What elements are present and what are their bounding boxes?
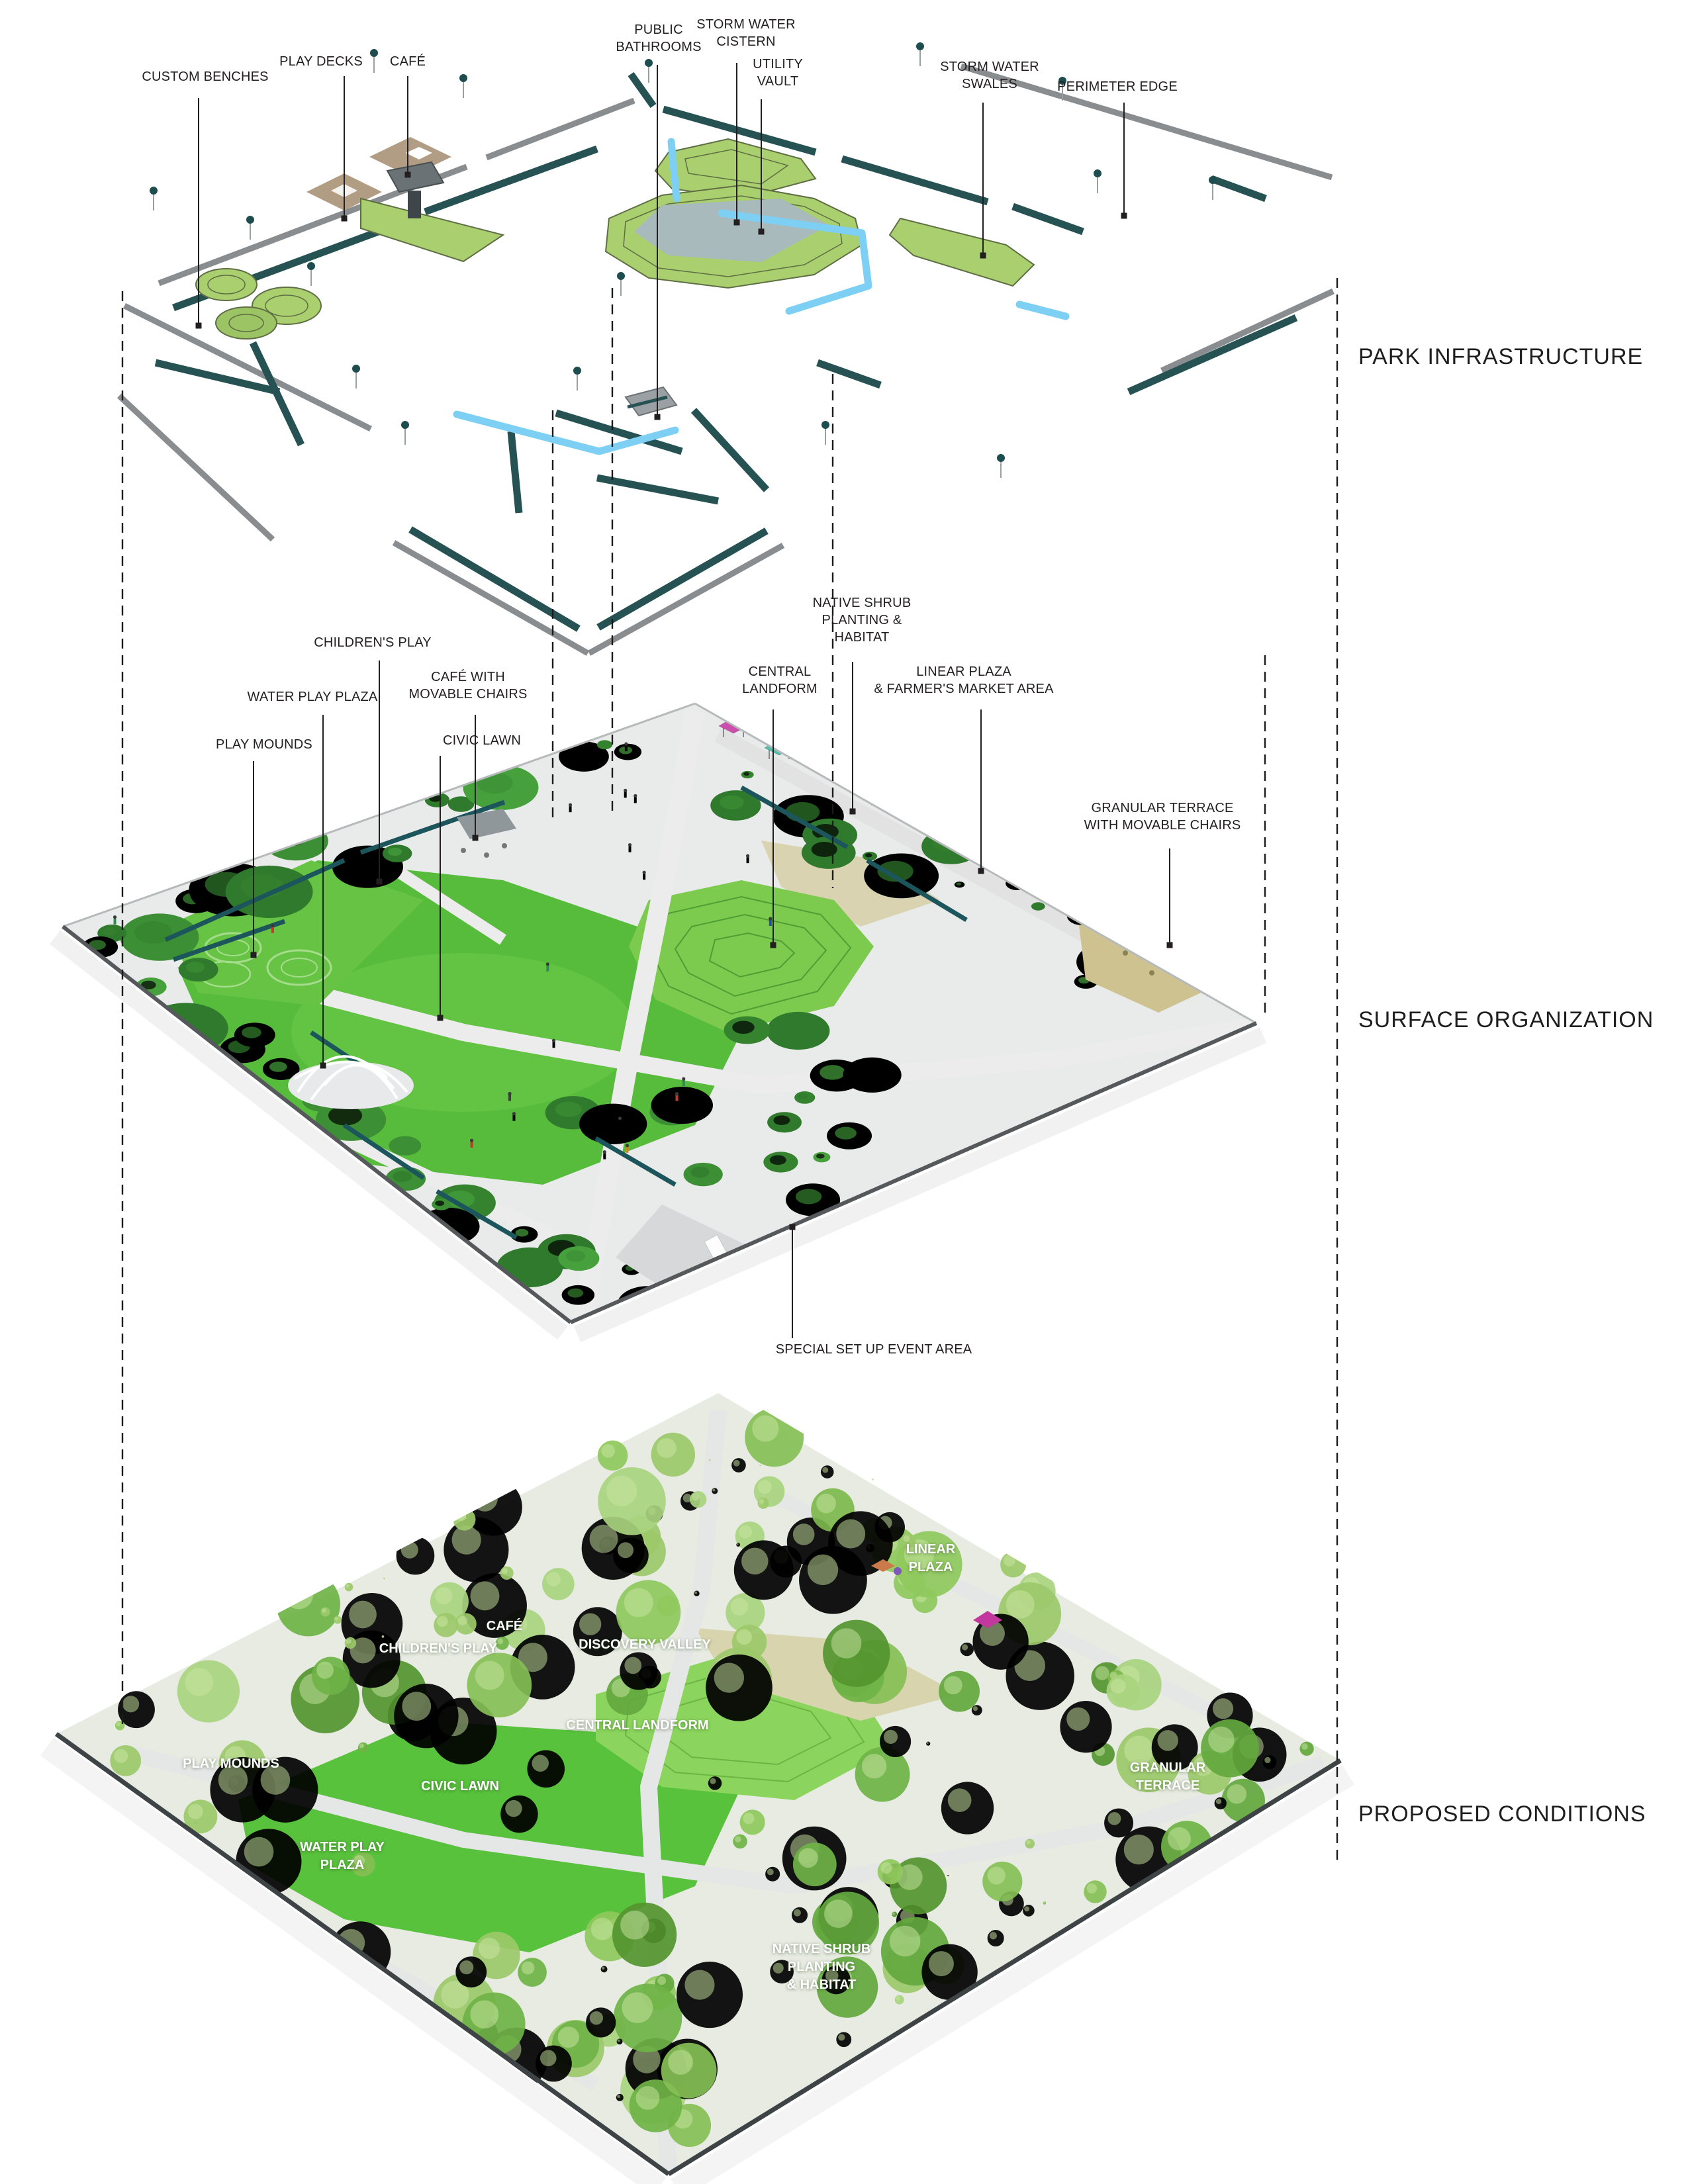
public-bathrooms-structure [626, 387, 677, 416]
storm-water-swales [890, 218, 1034, 286]
section-title-proposed-conditions: PROPOSED CONDITIONS [1358, 1801, 1646, 1827]
label-cafe-movable-chairs: CAFÉ WITH MOVABLE CHAIRS [408, 668, 527, 703]
label-rendered-childrens-play: CHILDREN'S PLAY [379, 1640, 498, 1658]
label-custom-benches: CUSTOM BENCHES [142, 68, 268, 85]
surface-organization-plan [0, 629, 1263, 1334]
label-perimeter-edge: PERIMETER EDGE [1057, 78, 1178, 95]
label-water-play-plaza: WATER PLAY PLAZA [248, 688, 378, 705]
label-linear-plaza-market: LINEAR PLAZA & FARMER'S MARKET AREA [874, 663, 1053, 698]
label-storm-water-swales: STORM WATER SWALES [940, 58, 1039, 93]
label-play-decks: PLAY DECKS [279, 53, 363, 70]
diagram-canvas: PARK INFRASTRUCTURE SURFACE ORGANIZATION… [0, 0, 1688, 2184]
label-rendered-civic-lawn: CIVIC LAWN [421, 1778, 499, 1796]
label-childrens-play: CHILDREN'S PLAY [314, 634, 432, 651]
label-rendered-water-play-plaza: WATER PLAY PLAZA [300, 1839, 385, 1874]
label-play-mounds: PLAY MOUNDS [216, 736, 312, 753]
label-storm-water-cistern: STORM WATER CISTERN [696, 16, 796, 50]
label-special-event-area: SPECIAL SET UP EVENT AREA [776, 1341, 972, 1358]
label-native-shrub-planting: NATIVE SHRUB PLANTING & HABITAT [813, 594, 912, 646]
label-rendered-native-shrub: NATIVE SHRUB PLANTING & HABITAT [773, 1940, 871, 1994]
label-central-landform: CENTRAL LANDFORM [742, 663, 818, 698]
label-utility-vault: UTILITY VAULT [753, 56, 803, 90]
label-rendered-cafe: CAFÉ [487, 1617, 522, 1635]
label-civic-lawn: CIVIC LAWN [443, 732, 521, 749]
label-cafe: CAFÉ [390, 53, 426, 70]
section-title-surface-organization: SURFACE ORGANIZATION [1358, 1007, 1654, 1033]
label-granular-terrace-chairs: GRANULAR TERRACE WITH MOVABLE CHAIRS [1084, 799, 1241, 834]
label-rendered-granular-terrace: GRANULAR TERRACE [1130, 1759, 1205, 1795]
label-rendered-play-mounds: PLAY MOUNDS [183, 1755, 279, 1773]
park-infrastructure-plan [119, 42, 1333, 653]
park-exploded-axonometric-illustration [0, 0, 1688, 2184]
label-public-bathrooms: PUBLIC BATHROOMS [616, 21, 701, 56]
label-rendered-linear-plaza: LINEAR PLAZA [906, 1541, 955, 1576]
play-decks [306, 137, 503, 261]
label-rendered-discovery-valley: DISCOVERY VALLEY [579, 1636, 711, 1654]
label-rendered-central-landform: CENTRAL LANDFORM [566, 1717, 708, 1735]
section-title-park-infrastructure: PARK INFRASTRUCTURE [1358, 344, 1643, 370]
